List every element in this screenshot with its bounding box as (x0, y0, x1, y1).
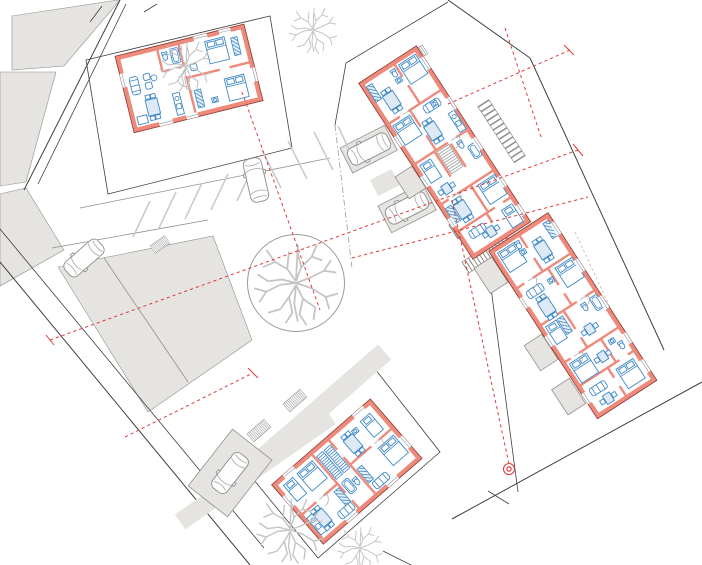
entry-pad (370, 169, 400, 196)
neighbor-block (0, 188, 64, 286)
site-plan-page (0, 0, 702, 565)
site-plan-canvas (0, 0, 702, 565)
tree-icon (289, 8, 337, 54)
building-apartments-east (471, 216, 654, 429)
neighbor-block (12, 0, 120, 70)
path-stairs (283, 389, 307, 412)
neighbor-block (0, 72, 56, 186)
survey-marker-icon (504, 464, 515, 475)
path-stairs (247, 419, 271, 442)
building-house-northwest (118, 27, 260, 130)
planted-circle (248, 235, 345, 332)
parking-stripes (133, 126, 352, 237)
tree-icon (337, 527, 383, 565)
